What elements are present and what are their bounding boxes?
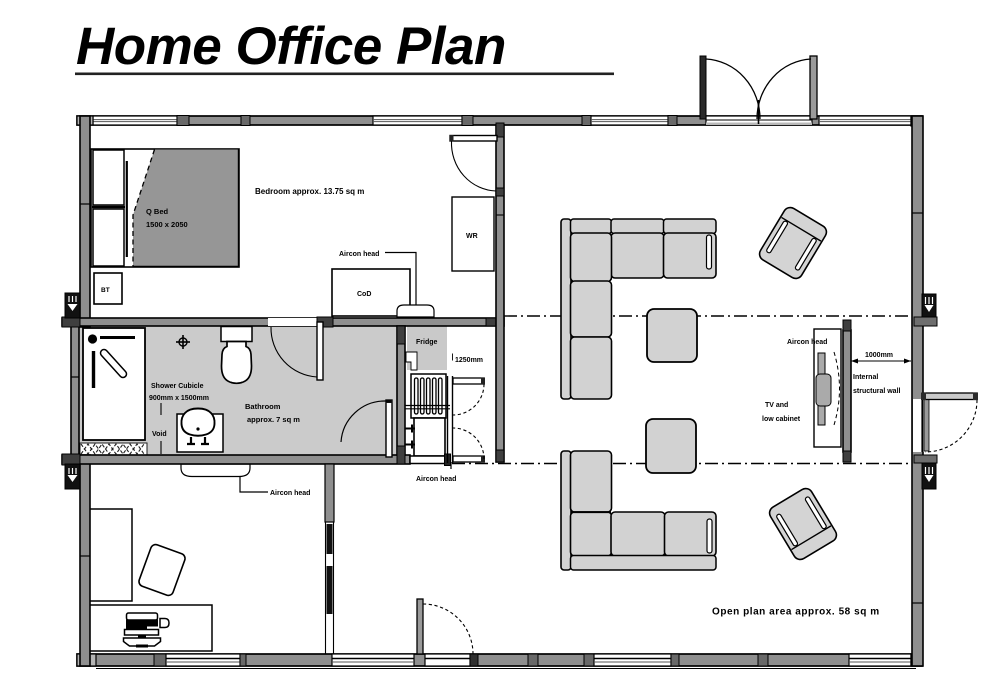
- svg-text:Home Office Plan: Home Office Plan: [76, 17, 506, 76]
- svg-text:Open plan area approx. 58 sq m: Open plan area approx. 58 sq m: [712, 607, 880, 618]
- svg-text:Aircon head: Aircon head: [339, 251, 379, 258]
- svg-text:Bedroom approx. 13.75 sq m: Bedroom approx. 13.75 sq m: [255, 187, 364, 196]
- svg-text:TV and: TV and: [765, 402, 788, 409]
- svg-text:Q Bed: Q Bed: [146, 207, 169, 216]
- svg-text:Fridge: Fridge: [416, 339, 437, 346]
- svg-text:structural wall: structural wall: [853, 388, 901, 395]
- svg-text:1250mm: 1250mm: [455, 357, 483, 364]
- svg-text:low cabinet: low cabinet: [762, 416, 801, 423]
- svg-text:Bathroom: Bathroom: [245, 402, 281, 411]
- svg-text:Void: Void: [152, 431, 167, 438]
- svg-text:900mm x 1500mm: 900mm x 1500mm: [149, 395, 209, 402]
- svg-text:Aircon head: Aircon head: [787, 339, 827, 346]
- svg-text:WR: WR: [466, 233, 478, 240]
- svg-text:Shower Cubicle: Shower Cubicle: [151, 383, 204, 390]
- svg-text:1500 x 2050: 1500 x 2050: [146, 220, 188, 229]
- svg-text:Aircon head: Aircon head: [416, 476, 456, 483]
- svg-text:approx. 7 sq m: approx. 7 sq m: [247, 415, 300, 424]
- svg-text:1000mm: 1000mm: [865, 352, 893, 359]
- svg-text:BT: BT: [101, 287, 110, 294]
- svg-text:CoD: CoD: [357, 291, 371, 298]
- svg-text:Aircon head: Aircon head: [270, 490, 310, 497]
- svg-text:Internal: Internal: [853, 374, 878, 381]
